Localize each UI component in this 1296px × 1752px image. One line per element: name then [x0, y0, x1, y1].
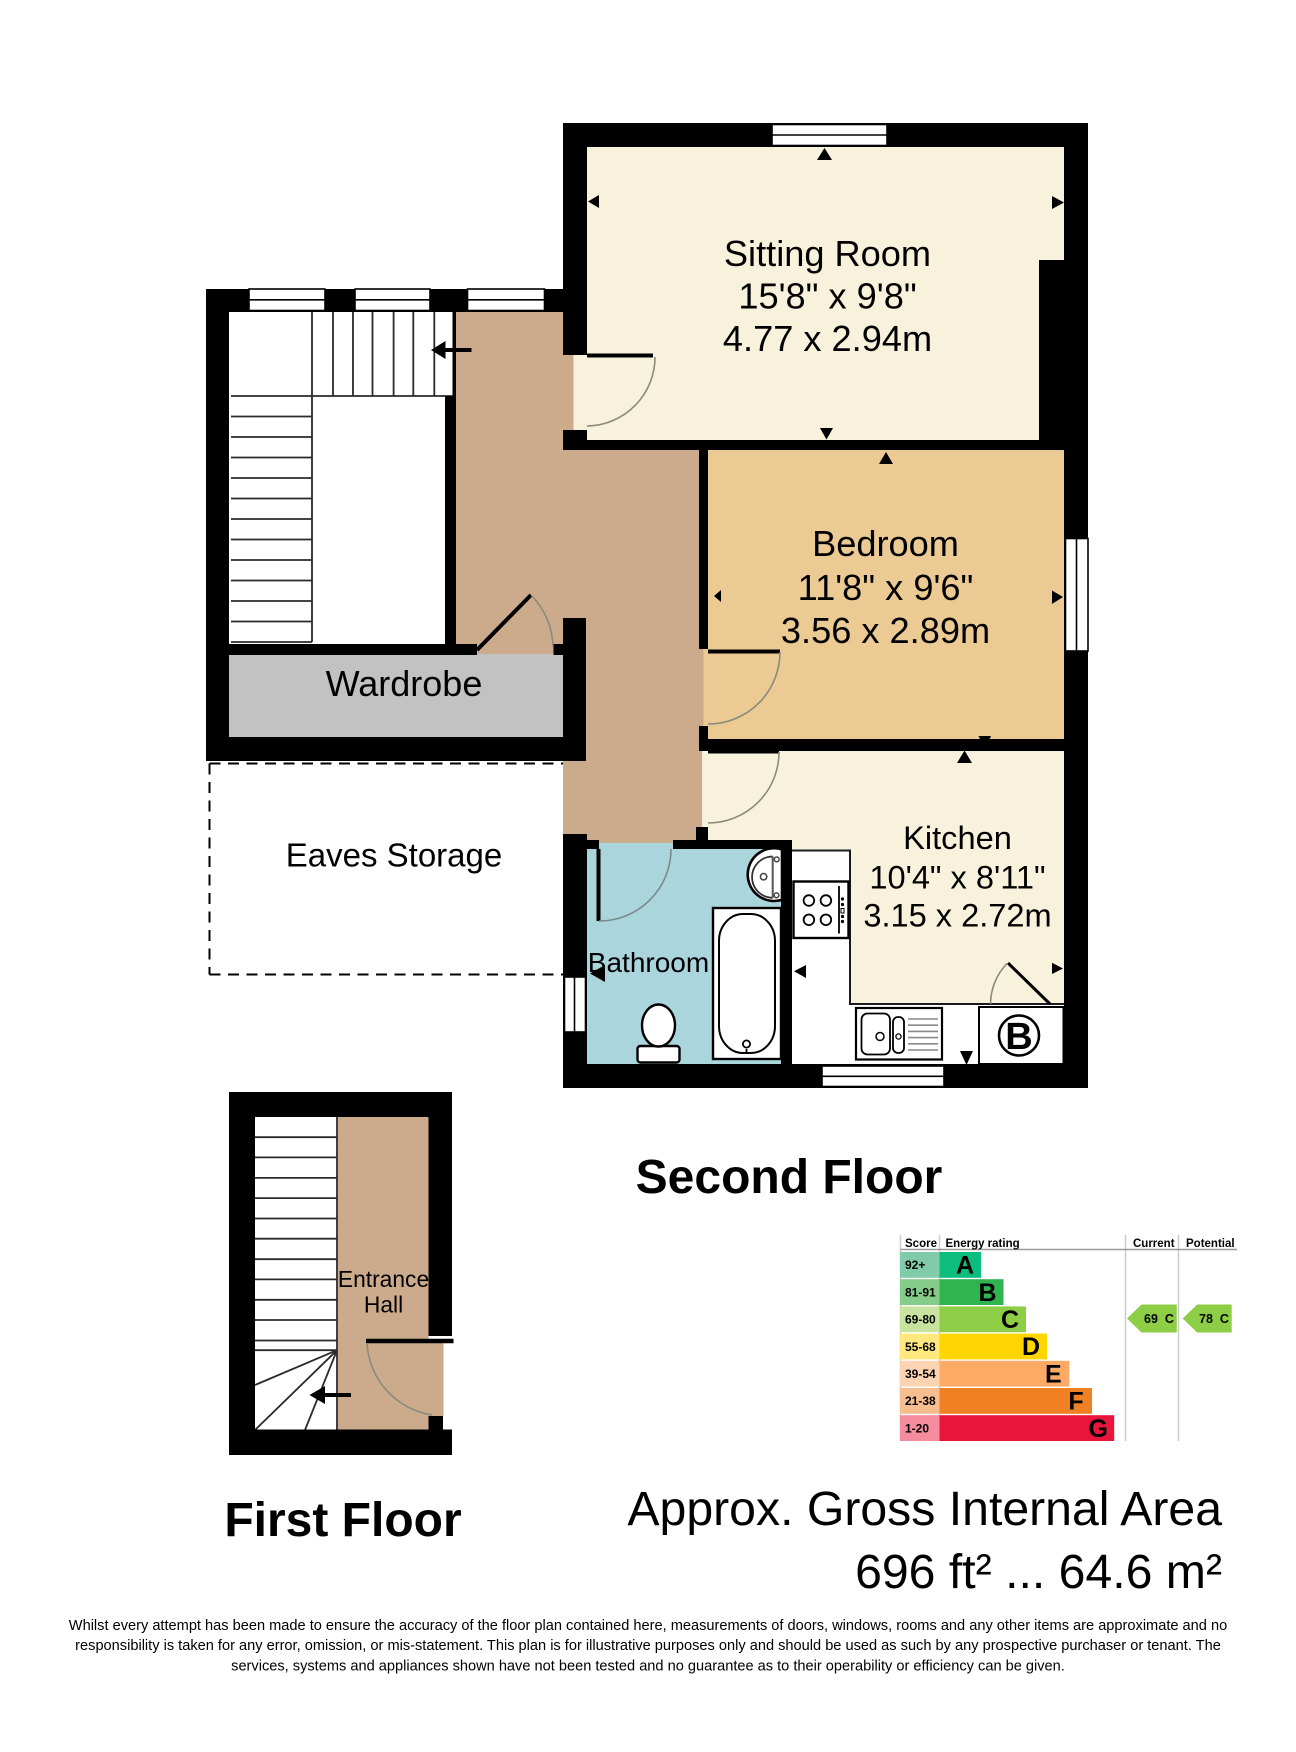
svg-text:55-68: 55-68 — [905, 1340, 936, 1354]
svg-text:3.56 x 2.89m: 3.56 x 2.89m — [781, 610, 990, 651]
svg-text:Bathroom: Bathroom — [588, 947, 709, 978]
svg-text:Hall: Hall — [364, 1292, 403, 1318]
svg-text:15'8" x 9'8": 15'8" x 9'8" — [738, 276, 916, 317]
svg-text:Current: Current — [1133, 1238, 1175, 1250]
svg-text:Score: Score — [905, 1238, 937, 1250]
svg-text:1-20: 1-20 — [905, 1421, 929, 1435]
svg-text:services, systems and applianc: services, systems and appliances shown h… — [231, 1658, 1065, 1674]
svg-text:Approx. Gross Internal Area: Approx. Gross Internal Area — [627, 1482, 1222, 1536]
svg-text:11'8" x 9'6": 11'8" x 9'6" — [798, 567, 974, 608]
svg-text:Energy rating: Energy rating — [946, 1238, 1020, 1250]
svg-text:69 C: 69 C — [1144, 1312, 1174, 1326]
svg-text:92+: 92+ — [905, 1258, 925, 1272]
svg-text:G: G — [1088, 1415, 1107, 1443]
svg-text:696 ft² ... 64.6 m²: 696 ft² ... 64.6 m² — [855, 1545, 1222, 1599]
svg-text:Eaves Storage: Eaves Storage — [286, 837, 502, 874]
svg-text:Sitting Room: Sitting Room — [724, 233, 931, 274]
svg-text:Entrance: Entrance — [338, 1266, 429, 1292]
svg-text:F: F — [1068, 1388, 1083, 1416]
svg-text:Wardrobe: Wardrobe — [326, 663, 483, 704]
svg-text:4.77 x 2.94m: 4.77 x 2.94m — [723, 318, 932, 359]
svg-text:3.15 x 2.72m: 3.15 x 2.72m — [863, 897, 1051, 934]
svg-text:Bedroom: Bedroom — [812, 523, 959, 564]
svg-text:10'4" x 8'11": 10'4" x 8'11" — [869, 859, 1045, 896]
svg-text:21-38: 21-38 — [905, 1394, 936, 1408]
svg-text:B: B — [978, 1279, 996, 1307]
svg-text:Potential: Potential — [1186, 1238, 1235, 1250]
svg-text:Second Floor: Second Floor — [636, 1151, 943, 1204]
svg-text:responsibility is taken for an: responsibility is taken for any error, o… — [75, 1638, 1221, 1654]
svg-text:B: B — [1005, 1016, 1032, 1058]
svg-text:D: D — [1022, 1333, 1040, 1361]
svg-text:69-80: 69-80 — [905, 1313, 936, 1327]
svg-text:A: A — [956, 1252, 974, 1280]
svg-text:C: C — [1001, 1306, 1019, 1334]
svg-text:E: E — [1045, 1360, 1062, 1388]
svg-text:First Floor: First Floor — [224, 1494, 461, 1547]
svg-text:Kitchen: Kitchen — [903, 819, 1012, 856]
svg-text:39-54: 39-54 — [905, 1367, 936, 1381]
svg-text:81-91: 81-91 — [905, 1285, 936, 1299]
svg-text:78 C: 78 C — [1199, 1312, 1229, 1326]
svg-text:Whilst every attempt has been: Whilst every attempt has been made to en… — [69, 1618, 1227, 1634]
